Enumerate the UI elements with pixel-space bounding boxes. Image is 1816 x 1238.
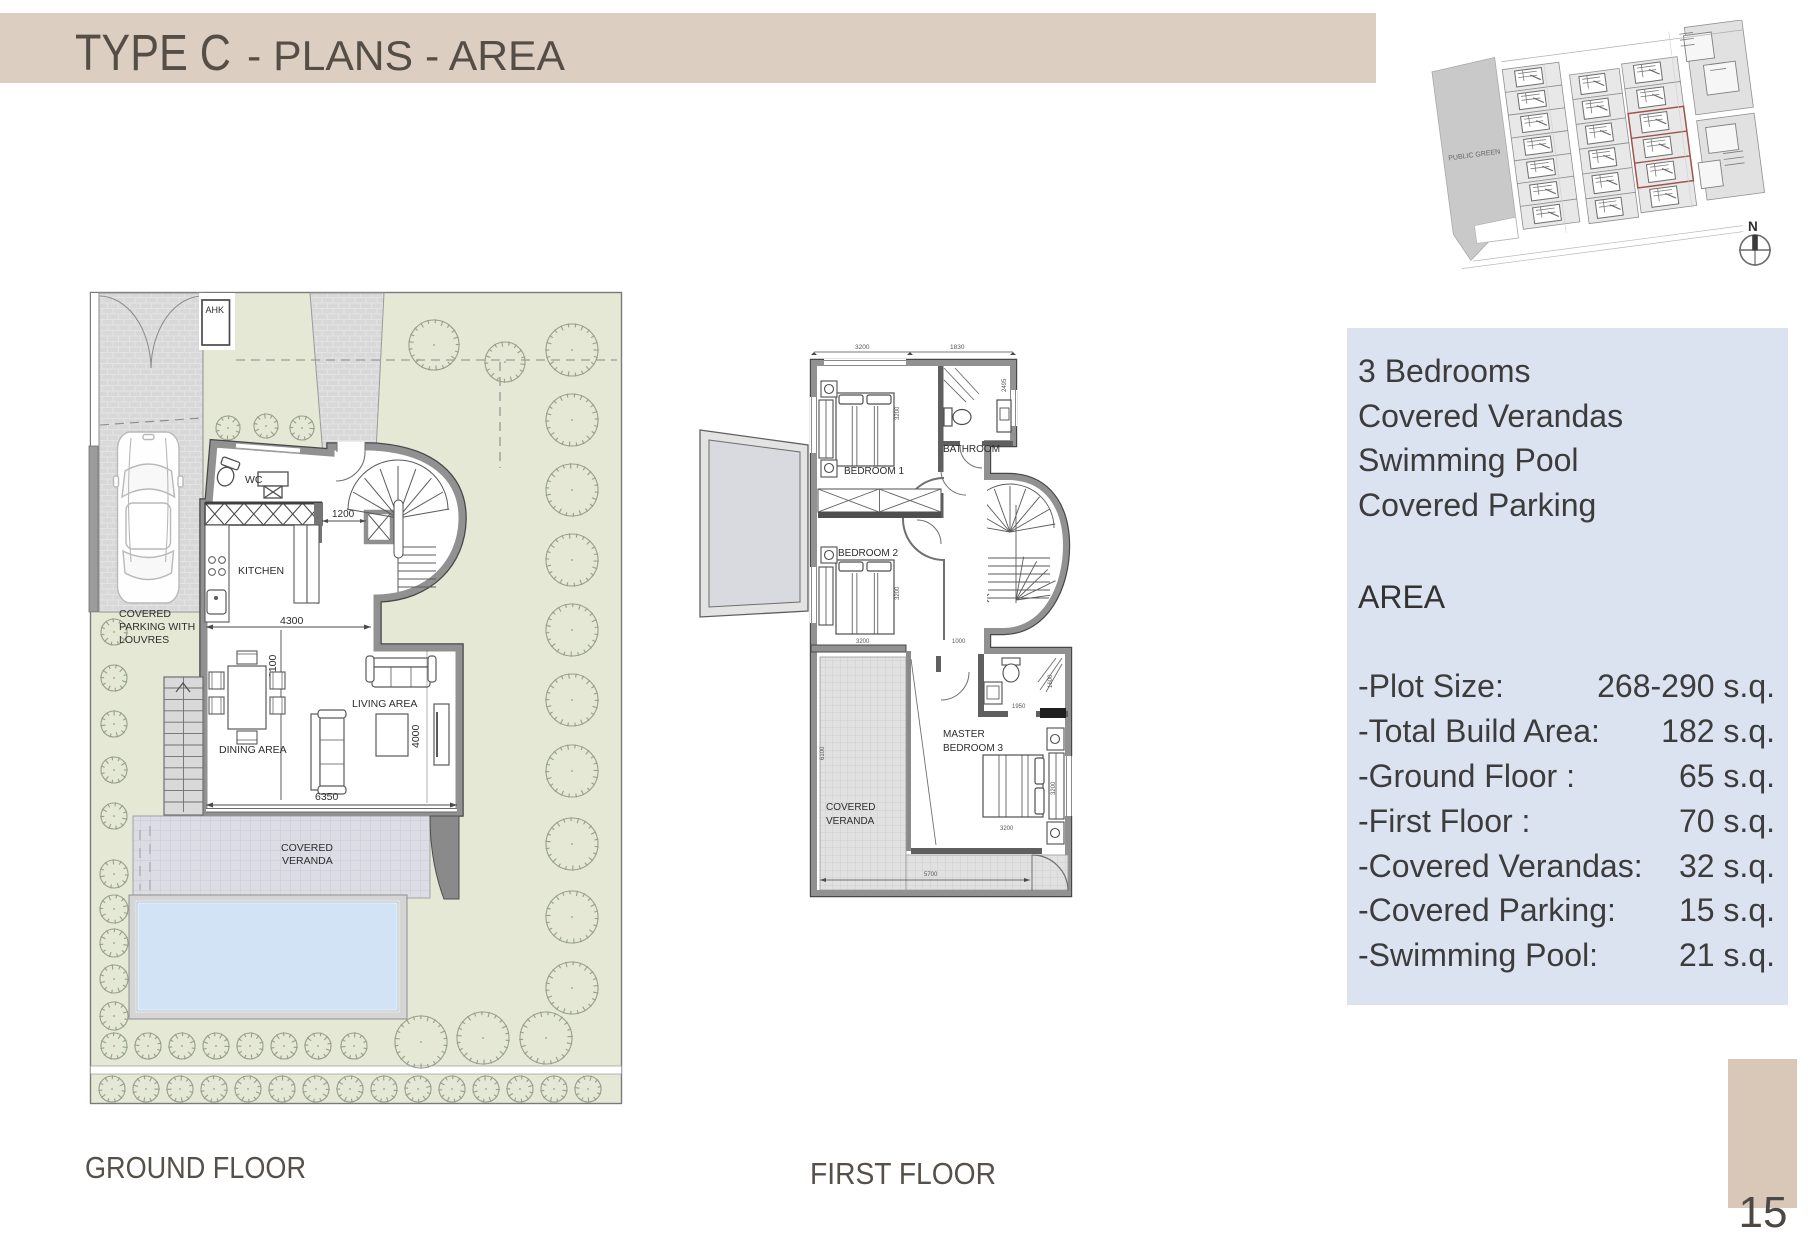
- svg-text:WC: WC: [245, 474, 263, 486]
- svg-text:3200: 3200: [1000, 826, 1014, 832]
- svg-text:COVERED: COVERED: [826, 802, 875, 813]
- svg-text:1600: 1600: [1048, 674, 1054, 688]
- svg-text:VERANDA: VERANDA: [282, 855, 333, 867]
- svg-text:5700: 5700: [924, 872, 938, 878]
- svg-text:1830: 1830: [950, 344, 965, 351]
- svg-text:4300: 4300: [280, 615, 304, 627]
- svg-text:COVERED: COVERED: [281, 842, 333, 854]
- svg-text:TYPE C: TYPE C: [75, 24, 231, 81]
- svg-text:LOUVRES: LOUVRES: [119, 634, 169, 646]
- svg-text:VERANDA: VERANDA: [826, 816, 875, 827]
- svg-text:BEDROOM 2: BEDROOM 2: [838, 548, 898, 559]
- svg-text:3200: 3200: [895, 406, 901, 420]
- svg-text:DINING AREA: DINING AREA: [219, 744, 287, 756]
- svg-text:3200: 3200: [855, 344, 870, 351]
- svg-text:MASTER: MASTER: [943, 729, 985, 740]
- svg-text:COVERED: COVERED: [119, 608, 171, 620]
- svg-text:BEDROOM 3: BEDROOM 3: [943, 743, 1003, 754]
- svg-text:1950: 1950: [1012, 704, 1026, 710]
- svg-text:1000: 1000: [952, 639, 966, 645]
- svg-text:GROUND FLOOR: GROUND FLOOR: [85, 1150, 306, 1185]
- svg-text:6350: 6350: [315, 791, 339, 803]
- svg-text:N: N: [1748, 219, 1758, 234]
- svg-text:3200: 3200: [1051, 781, 1057, 795]
- svg-text:FIRST FLOOR: FIRST FLOOR: [810, 1156, 996, 1191]
- svg-text:- PLANS - AREA: - PLANS - AREA: [247, 32, 565, 79]
- svg-text:PARKING WITH: PARKING WITH: [119, 621, 195, 633]
- svg-text:BATHROOM: BATHROOM: [943, 444, 1000, 455]
- svg-text:LIVING AREA: LIVING AREA: [352, 698, 417, 710]
- svg-text:6100: 6100: [820, 746, 826, 760]
- svg-text:2495: 2495: [1002, 378, 1008, 392]
- svg-text:4000: 4000: [410, 724, 422, 748]
- svg-text:3200: 3200: [895, 586, 901, 600]
- svg-text:BEDROOM 1: BEDROOM 1: [844, 466, 904, 477]
- svg-text:1200: 1200: [332, 509, 355, 520]
- svg-text:3200: 3200: [856, 639, 870, 645]
- svg-text:AHK: AHK: [206, 305, 225, 315]
- svg-text:KITCHEN: KITCHEN: [238, 565, 284, 577]
